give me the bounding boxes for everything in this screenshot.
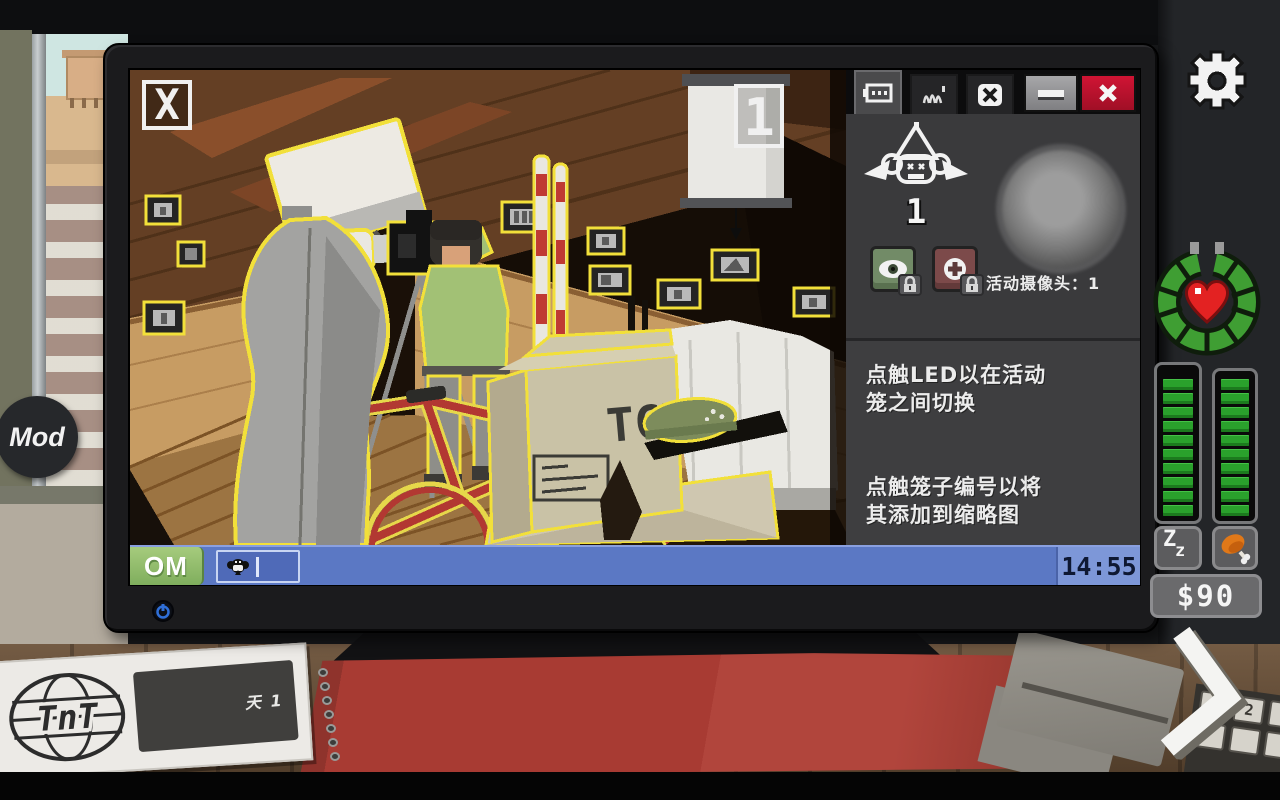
active-cameras-text: 活动摄像头： bbox=[986, 274, 1088, 293]
red-notebook bbox=[300, 648, 1045, 776]
next-day-arrow-button[interactable] bbox=[1150, 623, 1258, 767]
day-number-label: 天 1 bbox=[244, 687, 284, 714]
winged-monkey-icon bbox=[860, 122, 972, 194]
surveillance-panel: 1 活动摄像头：1 点触LED以在活动 笼之间切换 点触笼子编 bbox=[846, 70, 1140, 545]
key-blank bbox=[1267, 700, 1280, 730]
zz-sleep-icon: Z z bbox=[1163, 533, 1193, 563]
hunger-bar bbox=[1212, 368, 1258, 524]
power-button[interactable] bbox=[152, 600, 174, 622]
day-card: TnT 天 1 bbox=[0, 642, 313, 779]
cage-count-label[interactable]: 1 bbox=[860, 192, 972, 232]
tab-claw[interactable] bbox=[910, 74, 958, 114]
room-ceiling-shadow bbox=[0, 0, 1280, 45]
food-icon-box bbox=[1212, 526, 1258, 570]
tnt-logo-text: TnT bbox=[35, 696, 100, 740]
cage-camera-icon bbox=[863, 82, 893, 104]
tray-clock: 14:55 bbox=[1056, 547, 1140, 585]
os-taskbar: OM 14:55 bbox=[130, 545, 1140, 585]
day-card-dark-panel: 天 1 bbox=[133, 660, 299, 752]
start-button[interactable]: OM bbox=[130, 547, 204, 585]
power-icon bbox=[154, 602, 172, 620]
zz-char: z bbox=[1175, 545, 1185, 559]
panel-tab-bar bbox=[846, 70, 1140, 114]
minimize-button[interactable] bbox=[1024, 74, 1078, 112]
spiral-ring bbox=[318, 668, 328, 677]
spiral-ring bbox=[324, 710, 334, 719]
mannequin[interactable] bbox=[235, 206, 388, 545]
water-tower bbox=[66, 56, 106, 100]
cage-number-badge[interactable]: 1 bbox=[736, 86, 782, 148]
spiral-ring bbox=[328, 738, 338, 747]
key-blank bbox=[1263, 731, 1280, 761]
close-x-label: X bbox=[154, 80, 179, 129]
money-display: $90 bbox=[1150, 574, 1262, 618]
task-label-cursor bbox=[256, 557, 259, 577]
close-icon bbox=[1097, 82, 1119, 104]
panel-tips: 点触LED以在活动 笼之间切换 点触笼子编号以将 其添加到缩略图 bbox=[846, 338, 1140, 545]
settings-gear-button[interactable] bbox=[1186, 50, 1248, 112]
cage-number-label: 1 bbox=[743, 88, 774, 148]
spiral-ring bbox=[322, 696, 332, 705]
tip-cage-number: 点触笼子编号以将 其添加到缩略图 bbox=[866, 473, 1126, 530]
minimize-icon bbox=[1038, 90, 1064, 97]
feed-close-button[interactable]: X bbox=[144, 80, 190, 129]
lock-icon bbox=[898, 274, 922, 296]
spiral-ring bbox=[326, 724, 336, 733]
drumstick-icon bbox=[1218, 531, 1252, 565]
tip-led: 点触LED以在活动 笼之间切换 bbox=[866, 361, 1126, 418]
active-cameras-value: 1 bbox=[1088, 274, 1100, 293]
gear-icon bbox=[1189, 52, 1245, 108]
active-cameras-label: 活动摄像头：1 bbox=[986, 270, 1136, 294]
lock-icon bbox=[960, 274, 984, 296]
camera-feed[interactable]: TCT X 1 bbox=[130, 70, 846, 545]
sleep-bar bbox=[1154, 362, 1202, 524]
close-window-button[interactable] bbox=[1080, 74, 1136, 112]
desk-front-edge bbox=[0, 772, 1280, 800]
tab-cage-camera[interactable] bbox=[854, 70, 902, 114]
heart-icon bbox=[1186, 281, 1227, 322]
cage-led[interactable] bbox=[1002, 150, 1120, 268]
x-icon bbox=[977, 83, 1003, 107]
tab-close-cage[interactable] bbox=[966, 74, 1014, 114]
spiral-ring bbox=[320, 682, 330, 691]
tnt-globe-logo: TnT bbox=[1, 665, 133, 769]
taskbar-app-item[interactable] bbox=[216, 550, 300, 583]
spiral-ring bbox=[330, 752, 340, 761]
sleep-icon-box: Z z bbox=[1154, 526, 1202, 570]
monkey-icon bbox=[226, 556, 250, 578]
game-screen: 2 TnT 天 1 bbox=[0, 0, 1280, 800]
claw-icon bbox=[921, 84, 947, 106]
water-tower-legs bbox=[70, 98, 102, 108]
life-ring bbox=[1150, 240, 1264, 370]
